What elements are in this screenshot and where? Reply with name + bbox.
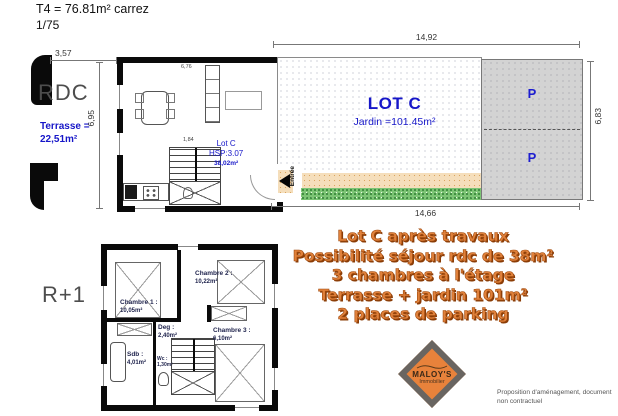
rdc-room-label: Lot C HSP:3.07 38,02m²	[209, 139, 243, 169]
chair-icon	[135, 109, 144, 119]
garden-area: LOT C Jardin =101.45m²	[277, 57, 482, 200]
toilet-icon	[183, 187, 193, 199]
disclaimer: Proposition d'aménagement, document non …	[497, 389, 615, 406]
bathtub-icon	[110, 342, 126, 382]
promo-line-1: Lot C après travaux	[268, 227, 578, 247]
parking-spot-2: P	[482, 150, 582, 165]
door-swing-arc	[250, 175, 275, 200]
room-label-wc: Wc : 1,30m²	[157, 356, 173, 368]
chair-icon	[135, 93, 144, 103]
terrace-wall-bottom-horizontal	[30, 163, 58, 181]
stair-winders	[172, 371, 214, 394]
dim-bottom: 14,66	[271, 208, 580, 218]
chair-icon	[166, 109, 175, 119]
appliance-icon	[125, 185, 137, 199]
parking-divider	[484, 129, 580, 130]
logo-name: MALOY'S	[412, 370, 452, 379]
room-label-chambre1: Chambre 1 : 10,05m²	[120, 299, 158, 315]
window	[135, 206, 165, 212]
toilet-icon	[158, 372, 169, 386]
window	[272, 368, 278, 390]
room-label-chambre2: Chambre 2 : 10,22m²	[195, 270, 233, 286]
parking-area: P P	[481, 59, 583, 200]
window	[178, 244, 198, 250]
terrace-area-label: Terrasse = 22,51m²	[40, 120, 90, 146]
window	[117, 85, 123, 109]
page-title: T4 = 76.81m² carrez	[36, 2, 149, 16]
chair-icon	[166, 93, 175, 103]
promo-line-4: Terrasse + jardin 101m²	[268, 286, 578, 306]
micro-dim-stairs: 1,84	[183, 137, 194, 143]
dim-house-depth: 6,95	[86, 110, 96, 127]
cooktop-icon	[143, 186, 159, 200]
lot-title: LOT C	[318, 94, 471, 114]
micro-dim-top: 6,76	[181, 64, 192, 70]
room-label-chambre3: Chambre 3 : 6,10m²	[213, 327, 251, 343]
partition-wall	[177, 250, 181, 320]
dim-line-bottom	[271, 206, 580, 207]
rug-icon	[225, 91, 262, 110]
agency-logo: MALOY'S Immobilier	[399, 341, 465, 407]
floorplan-document: T4 = 76.81m² carrez 1/75 RDC Terrasse = …	[0, 0, 618, 416]
promo-block: Lot C après travaux Possibilité séjour r…	[268, 227, 578, 325]
entrance-label: Entrée	[289, 166, 296, 186]
promo-line-2: Possibilité séjour rdc de 38m²	[268, 247, 578, 267]
room-label-sdb: Sdb : 4,01m²	[127, 351, 146, 367]
room-label-degagement: Deg : 2,40m²	[158, 324, 177, 340]
window	[235, 405, 259, 411]
hedge-strip	[297, 188, 481, 200]
dim-top: 14,92	[273, 32, 580, 42]
bed-icon	[215, 344, 265, 402]
partition-wall	[153, 322, 156, 405]
partition-wall	[107, 318, 181, 322]
rdc-floor-label: RDC	[38, 80, 89, 106]
dim-terrace-width: 3,57	[55, 48, 72, 58]
sofa-icon	[205, 65, 220, 123]
window	[101, 286, 107, 310]
promo-line-5: 2 places de parking	[268, 305, 578, 325]
r1-floor-label: R+1	[42, 282, 86, 308]
window	[101, 364, 107, 386]
staircase-icon	[171, 338, 215, 395]
dim-line-top	[273, 44, 580, 45]
stair-winders	[170, 181, 220, 204]
garden-path	[302, 173, 481, 189]
promo-line-3: 3 chambres à l'étage	[268, 266, 578, 286]
r1-plan: Chambre 1 : 10,05m² Chambre 2 : 10,22m² …	[101, 244, 278, 411]
dim-line-terrace-width	[50, 60, 117, 61]
dim-line-house-depth	[99, 62, 100, 209]
garden-area-label: Jardin =101.45m²	[318, 116, 471, 128]
dim-right: 6,83	[593, 108, 603, 125]
window	[117, 133, 123, 155]
logo-text: MALOY'S Immobilier	[399, 341, 465, 407]
dining-table-icon	[141, 91, 169, 125]
closet-icon	[117, 323, 152, 336]
logo-subtitle: Immobilier	[419, 379, 444, 385]
parking-spot-1: P	[482, 86, 582, 101]
rdc-plan: Lot C HSP:3.07 38,02m² 6,76 1,84	[117, 57, 283, 212]
closet-icon	[211, 306, 247, 321]
dim-line-right	[590, 61, 591, 201]
logo-wave-icon	[415, 363, 449, 370]
scale-label: 1/75	[36, 18, 59, 32]
